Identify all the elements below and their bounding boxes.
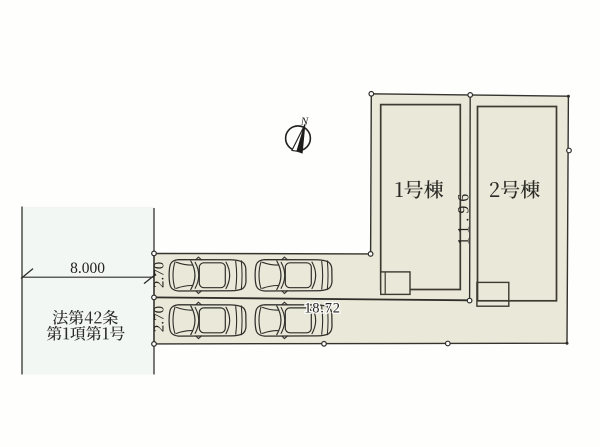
svg-text:11.96: 11.96 bbox=[456, 190, 473, 245]
svg-text:18.72: 18.72 bbox=[304, 301, 341, 317]
svg-text:N: N bbox=[300, 116, 309, 128]
svg-text:2.70: 2.70 bbox=[151, 262, 167, 288]
svg-text:8.000: 8.000 bbox=[70, 260, 105, 277]
svg-text:2.70: 2.70 bbox=[151, 306, 167, 332]
